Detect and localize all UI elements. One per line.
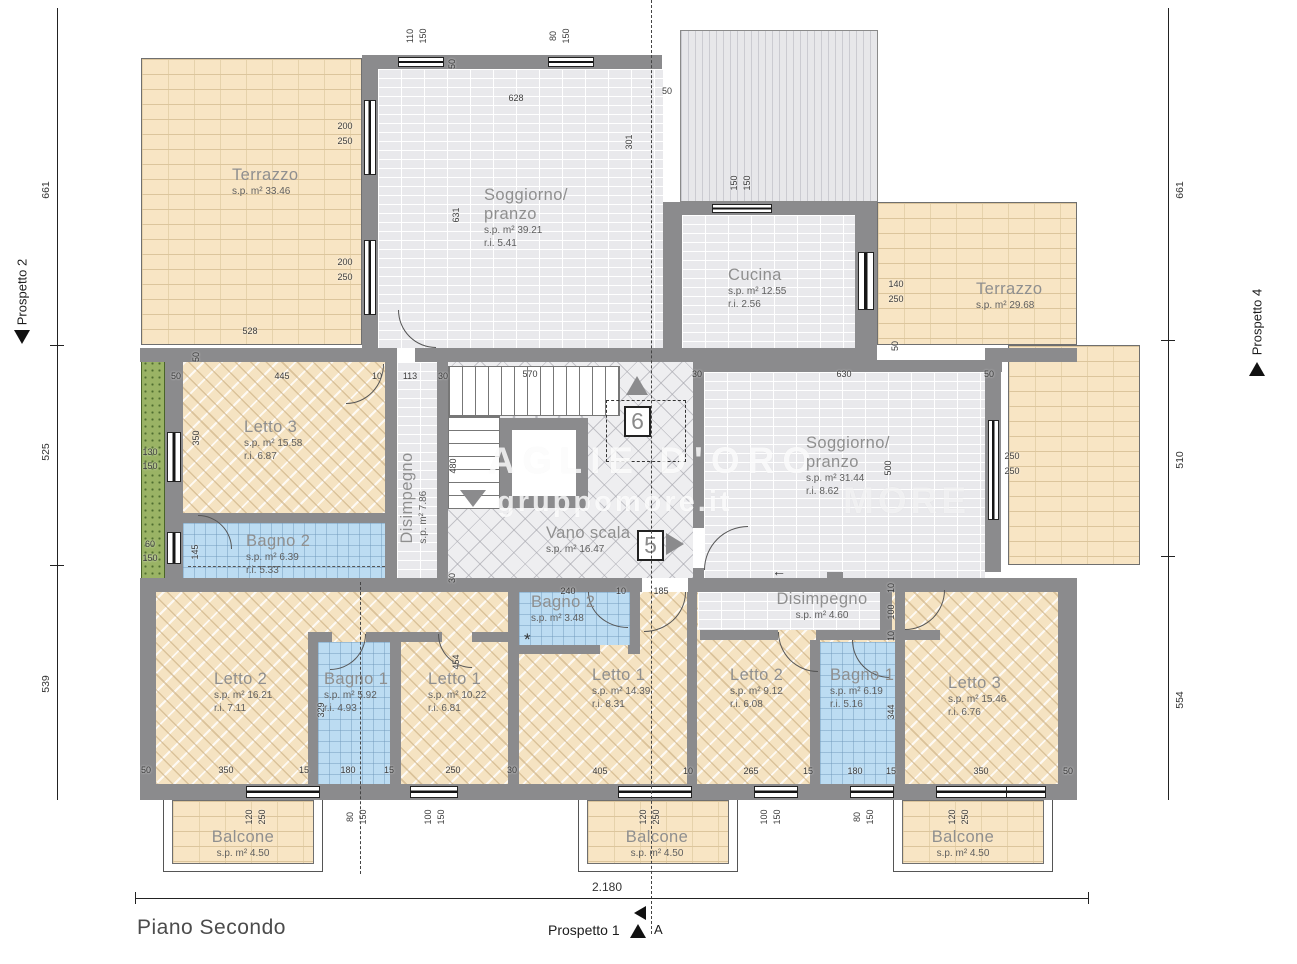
- room-area-text: s.p. m² 4.50: [212, 847, 274, 860]
- wall: [508, 592, 519, 784]
- wall: [663, 202, 682, 348]
- wall: [385, 362, 397, 513]
- floor-title: Piano Secondo: [137, 916, 286, 940]
- dimension-label: 80: [548, 31, 558, 41]
- room-label-vano-scala: Vano scalas.p. m² 16.47: [546, 524, 630, 556]
- room-name: pranzo: [484, 205, 568, 224]
- wall: [827, 572, 843, 588]
- dimension-label: 350: [191, 430, 201, 445]
- dimension-label: 405: [592, 766, 607, 776]
- dimension-label: 50: [662, 86, 672, 96]
- room-area-text: s.p. m² 10.22: [428, 689, 486, 702]
- dimension-line-right: [1168, 8, 1169, 800]
- room-area-text: s.p. m² 29.68: [976, 299, 1042, 312]
- dimension-label: 50: [984, 369, 994, 379]
- ruler-tick: [1161, 340, 1175, 341]
- room-area-text: s.p. m² 4.50: [626, 847, 688, 860]
- dimension-label: 120: [244, 809, 254, 824]
- window: [858, 252, 874, 310]
- room-name: Letto 3: [244, 418, 302, 437]
- window: [754, 786, 798, 798]
- room-label-soggiorno-pranzo-top: Soggiorno/pranzos.p. m² 39.21r.i. 5.41: [484, 186, 568, 250]
- room-label-bagno2-mid-left: Bagno 2s.p. m² 6.39r.i. 5.33: [246, 532, 310, 577]
- room-area-text: s.p. m² 16.21: [214, 689, 272, 702]
- room-name: Vano scala: [546, 524, 630, 543]
- room-label-balcone-right: Balcones.p. m² 4.50: [932, 828, 994, 860]
- room-label-letto1-bottom-left: Letto 1s.p. m² 10.22r.i. 6.81: [428, 670, 486, 715]
- wall: [628, 645, 640, 654]
- dimension-label: 150: [142, 553, 157, 563]
- room-area-text: s.p. m² 4.50: [932, 847, 994, 860]
- section-letter: A: [654, 922, 663, 937]
- dimension-label: 100: [423, 809, 433, 824]
- dimension-label: 500: [883, 460, 893, 475]
- dimension-label: 120: [947, 809, 957, 824]
- room-area-text: s.p. m² 12.55: [728, 285, 786, 298]
- dimension-label: 329: [316, 702, 326, 717]
- dimension-label: 150: [142, 461, 157, 471]
- room-label-letto2-bottom-left: Letto 2s.p. m² 16.21r.i. 7.11: [214, 670, 272, 715]
- asterisk-symbol: *: [524, 630, 531, 650]
- wall: [140, 578, 500, 592]
- dimension-label: 200: [337, 121, 352, 131]
- watermark-text: AGLIE D'ORO: [488, 440, 819, 482]
- room-area-text: s.p. m² 6.19: [830, 685, 894, 698]
- dimension-label: 50: [141, 765, 151, 775]
- dimension-label: 250: [1004, 466, 1019, 476]
- room-area-text: s.p. m² 14.39: [592, 685, 650, 698]
- dimension-label: 240: [560, 586, 575, 596]
- window: [167, 532, 181, 564]
- dimension-label: 50: [1063, 766, 1073, 776]
- room-name: Bagno 2: [246, 532, 310, 551]
- dimension-label: 15: [803, 766, 813, 776]
- room-name: Disimpegno: [398, 452, 417, 543]
- dimension-label: 30: [507, 765, 517, 775]
- prospetto-4-arrow-icon: [1249, 362, 1265, 376]
- wall: [700, 630, 778, 640]
- room-label-letto1-bottom-center: Letto 1s.p. m² 14.39r.i. 8.31: [592, 666, 650, 711]
- dimension-label: 15: [886, 766, 896, 776]
- dimension-line-left: [57, 8, 58, 800]
- dimension-label: 113: [403, 371, 417, 381]
- ruler-label: 510: [1174, 451, 1186, 469]
- wall: [366, 632, 442, 642]
- room-name: Balcone: [212, 828, 274, 847]
- room-name: Balcone: [932, 828, 994, 847]
- room-area-text: r.i. 5.41: [484, 237, 568, 250]
- room-name: Terrazzo: [976, 280, 1042, 299]
- dimension-label: 10: [616, 586, 626, 596]
- room-label-letto2-bottom-right: Letto 2s.p. m² 9.12r.i. 6.08: [730, 666, 783, 711]
- centerline: [360, 582, 361, 874]
- room-name: Terrazzo: [232, 166, 298, 185]
- room-terrazzo-right-column: [1008, 345, 1140, 565]
- dimension-label: 180: [847, 766, 862, 776]
- room-area-text: s.p. m² 33.46: [232, 185, 298, 198]
- wall: [687, 592, 697, 784]
- window: [850, 786, 894, 798]
- room-area-text: r.i. 7.11: [214, 702, 272, 715]
- window: [548, 57, 594, 67]
- wall: [415, 348, 663, 362]
- room-area-text: s.p. m² 39.21: [484, 224, 568, 237]
- dimension-label: 250: [337, 136, 352, 146]
- dimension-label: 50: [171, 371, 181, 381]
- room-area-text: r.i. 2.56: [728, 298, 786, 311]
- room-area-text: s.p. m² 7.86: [417, 452, 430, 543]
- room-name: Soggiorno/: [806, 434, 890, 453]
- window: [246, 786, 320, 798]
- dimension-label: 150: [418, 28, 428, 43]
- room-label-terrazzo-top-left: Terrazzos.p. m² 33.46: [232, 166, 298, 198]
- room-area-text: s.p. m² 5.92: [324, 689, 388, 702]
- left-arrow-symbol: ←: [772, 563, 786, 579]
- wall: [688, 578, 1077, 592]
- room-area-text: r.i. 6.76: [948, 706, 1006, 719]
- window: [988, 420, 999, 520]
- room-name: Balcone: [626, 828, 688, 847]
- room-name: Soggiorno/: [484, 186, 568, 205]
- room-name: Letto 1: [592, 666, 650, 685]
- dimension-label: 350: [218, 765, 233, 775]
- dimension-label: 150: [729, 175, 739, 190]
- dimension-label: 528: [242, 326, 257, 336]
- dimension-label: 630: [836, 369, 851, 379]
- apartment-number-6: 6: [624, 406, 651, 437]
- room-area-text: r.i. 6.81: [428, 702, 486, 715]
- prospetto-4-label: Prospetto 4: [1250, 289, 1265, 356]
- room-label-balcone-left: Balcones.p. m² 4.50: [212, 828, 274, 860]
- prospetto-1-arrow-icon: [630, 924, 646, 938]
- ruler-label: 539: [40, 675, 52, 693]
- dimension-label: 350: [973, 766, 988, 776]
- dimension-label: 185: [653, 586, 668, 596]
- room-label-terrazzo-right: Terrazzos.p. m² 29.68: [976, 280, 1042, 312]
- dimension-label: 570: [522, 369, 537, 379]
- dimension-label: 10: [886, 583, 896, 593]
- overall-width-label: 2.180: [592, 880, 622, 894]
- room-area-text: r.i. 4.93: [324, 702, 388, 715]
- dimension-label: 631: [451, 207, 461, 222]
- dimension-label: 454: [451, 654, 461, 669]
- room-terrazzo-right: [877, 202, 1077, 345]
- room-name: Letto 1: [428, 670, 486, 689]
- dimension-label: 301: [624, 134, 634, 149]
- room-name: pranzo: [806, 453, 890, 472]
- dimension-label: 60: [145, 539, 155, 549]
- dimension-label: 130: [142, 447, 157, 457]
- window: [618, 786, 692, 798]
- ruler-tick: [135, 892, 136, 904]
- room-area-text: s.p. m² 6.39: [246, 551, 310, 564]
- wall: [390, 640, 401, 784]
- wall: [816, 630, 940, 640]
- stair-down-arrow-icon: [460, 490, 486, 507]
- room-label-disimpegno-vert: Disimpegnos.p. m² 7.86: [398, 452, 430, 543]
- dimension-label: 30: [447, 573, 457, 583]
- window: [167, 432, 181, 482]
- window: [398, 57, 444, 67]
- room-area-text: s.p. m² 31.44: [806, 472, 890, 485]
- room-label-soggiorno-pranzo-right: Soggiorno/pranzos.p. m² 31.44r.i. 8.62: [806, 434, 890, 498]
- room-area-text: r.i. 5.33: [246, 564, 310, 577]
- room-name: Letto 3: [948, 674, 1006, 693]
- prospetto-1-label: Prospetto 1: [548, 922, 620, 938]
- window: [364, 100, 376, 175]
- room-name: Bagno 1: [830, 666, 894, 685]
- room-area-text: r.i. 8.62: [806, 485, 890, 498]
- dimension-label: 100: [886, 604, 896, 619]
- room-label-bagno2-small: Bagno 2s.p. m² 3.48: [531, 593, 595, 625]
- floor-plan: 6 5 * ← AGLIE D'ORO gruppomore.it MORE 6…: [0, 0, 1297, 964]
- stair-up-arrow-icon: [626, 376, 648, 395]
- dimension-label: 250: [888, 294, 903, 304]
- room-label-disimpegno-horiz: Disimpegnos.p. m² 4.60: [776, 590, 867, 622]
- window: [364, 240, 376, 315]
- room-label-balcone-center: Balcones.p. m² 4.50: [626, 828, 688, 860]
- dimension-label: 50: [191, 352, 201, 362]
- dimension-label: 150: [772, 809, 782, 824]
- ruler-tick: [1088, 892, 1089, 904]
- dimension-label: 10: [372, 371, 382, 381]
- dimension-label: 250: [337, 272, 352, 282]
- room-name: Cucina: [728, 266, 786, 285]
- dimension-label: 250: [960, 809, 970, 824]
- dimension-label: 445: [274, 371, 289, 381]
- dimension-label: 250: [257, 809, 267, 824]
- room-area-text: r.i. 6.08: [730, 698, 783, 711]
- roof-area: [680, 30, 878, 202]
- apartment-5-arrow-icon: [666, 533, 684, 555]
- room-area-text: r.i. 6.87: [244, 450, 302, 463]
- room-terrazzo-top-left: [141, 58, 362, 345]
- dimension-label: 150: [436, 809, 446, 824]
- wall: [385, 513, 397, 588]
- ruler-tick: [50, 565, 64, 566]
- dimension-label: 110: [405, 29, 415, 43]
- dimension-label: 80: [345, 812, 355, 822]
- room-name: Letto 2: [214, 670, 272, 689]
- dimension-label: 250: [1004, 451, 1019, 461]
- dimension-label: 265: [743, 766, 758, 776]
- dimension-label: 10: [683, 766, 693, 776]
- prospetto-2-label: Prospetto 2: [15, 259, 30, 326]
- dimension-label: 250: [651, 809, 661, 824]
- wall: [308, 632, 332, 642]
- dimension-line-bottom: [135, 898, 1088, 899]
- dimension-label: 200: [337, 257, 352, 267]
- room-label-letto3-bottom-right: Letto 3s.p. m² 15.46r.i. 6.76: [948, 674, 1006, 719]
- dimension-label: 120: [638, 809, 648, 824]
- dimension-label: 50: [890, 341, 900, 351]
- wall: [895, 592, 905, 784]
- dimension-label: 480: [448, 458, 458, 473]
- window: [936, 786, 1010, 798]
- dimension-label: 10: [886, 631, 896, 641]
- room-label-letto3-mid-left: Letto 3s.p. m² 15.58r.i. 6.87: [244, 418, 302, 463]
- prospetto-2-arrow-icon: [14, 330, 30, 344]
- wall: [140, 588, 156, 784]
- watermark-url: gruppomore.it: [497, 486, 733, 519]
- wall: [437, 362, 448, 578]
- dimension-label: 15: [299, 765, 309, 775]
- room-name: Bagno 1: [324, 670, 388, 689]
- wall: [1058, 592, 1077, 788]
- dimension-label: 344: [886, 704, 896, 719]
- section-cut-arrow-icon: [634, 906, 646, 920]
- room-area-text: s.p. m² 16.47: [546, 543, 630, 556]
- ruler-label: 554: [1174, 691, 1186, 709]
- dimension-label: 140: [888, 279, 903, 289]
- window: [1006, 786, 1046, 798]
- dimension-label: 30: [692, 369, 702, 379]
- room-label-bagno1-bottom-right: Bagno 1s.p. m² 6.19r.i. 5.16: [830, 666, 894, 711]
- dimension-label: 150: [561, 28, 571, 43]
- dimension-label: 50: [447, 59, 457, 69]
- ruler-label: 525: [40, 443, 52, 461]
- dimension-label: 628: [508, 93, 523, 103]
- ruler-label: 661: [1174, 181, 1186, 199]
- dimension-label: 180: [340, 765, 355, 775]
- ruler-label: 661: [40, 181, 52, 199]
- wall: [472, 632, 508, 642]
- ruler-tick: [50, 345, 64, 346]
- window: [410, 786, 458, 798]
- ruler-tick: [1161, 556, 1175, 557]
- window: [712, 204, 772, 213]
- dimension-label: 100: [759, 809, 769, 824]
- dimension-label: 30: [438, 371, 448, 381]
- room-area-text: s.p. m² 4.60: [776, 609, 867, 622]
- room-label-bagno1-bottom-left: Bagno 1s.p. m² 5.92r.i. 4.93: [324, 670, 388, 715]
- wall: [235, 513, 385, 523]
- room-area-text: r.i. 8.31: [592, 698, 650, 711]
- room-area-text: r.i. 5.16: [830, 698, 894, 711]
- dimension-label: 15: [384, 765, 394, 775]
- room-name: Disimpegno: [776, 590, 867, 609]
- dimension-label: 145: [190, 544, 200, 559]
- room-label-cucina: Cucinas.p. m² 12.55r.i. 2.56: [728, 266, 786, 311]
- room-name: Letto 2: [730, 666, 783, 685]
- dimension-label: 150: [742, 175, 752, 190]
- dimension-label: 250: [445, 765, 460, 775]
- room-area-text: s.p. m² 9.12: [730, 685, 783, 698]
- room-area-text: s.p. m² 15.58: [244, 437, 302, 450]
- dimension-label: 80: [852, 812, 862, 822]
- dimension-label: 150: [865, 809, 875, 824]
- dimension-label: 150: [358, 809, 368, 824]
- room-area-text: s.p. m² 15.46: [948, 693, 1006, 706]
- room-area-text: s.p. m² 3.48: [531, 612, 595, 625]
